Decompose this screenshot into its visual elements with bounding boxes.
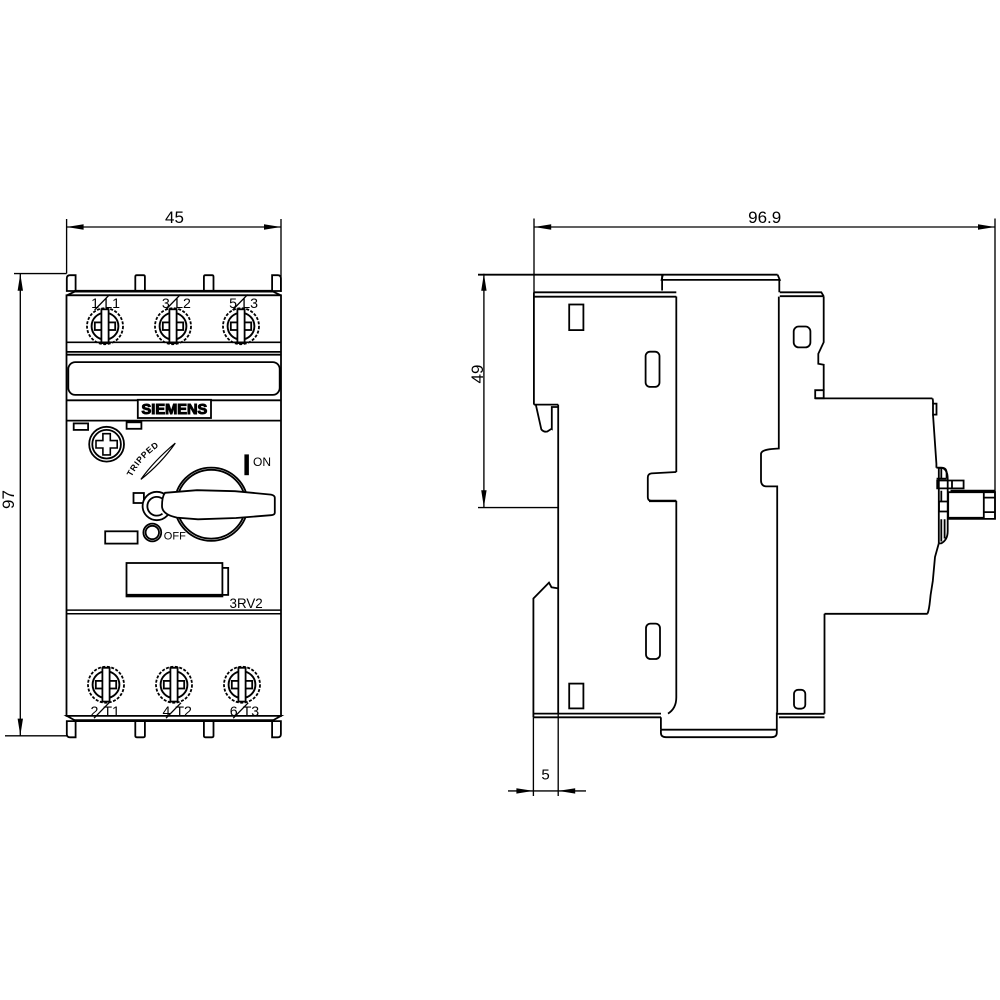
svg-text:ON: ON (253, 455, 271, 469)
svg-text:96.9: 96.9 (748, 208, 781, 227)
svg-text:97: 97 (0, 490, 18, 509)
svg-text:SIEMENS: SIEMENS (142, 402, 208, 418)
svg-text:49: 49 (468, 365, 487, 384)
svg-text:5: 5 (541, 767, 549, 784)
svg-text:3RV2: 3RV2 (230, 596, 263, 611)
svg-text:OFF: OFF (164, 530, 186, 542)
svg-text:45: 45 (165, 208, 184, 227)
